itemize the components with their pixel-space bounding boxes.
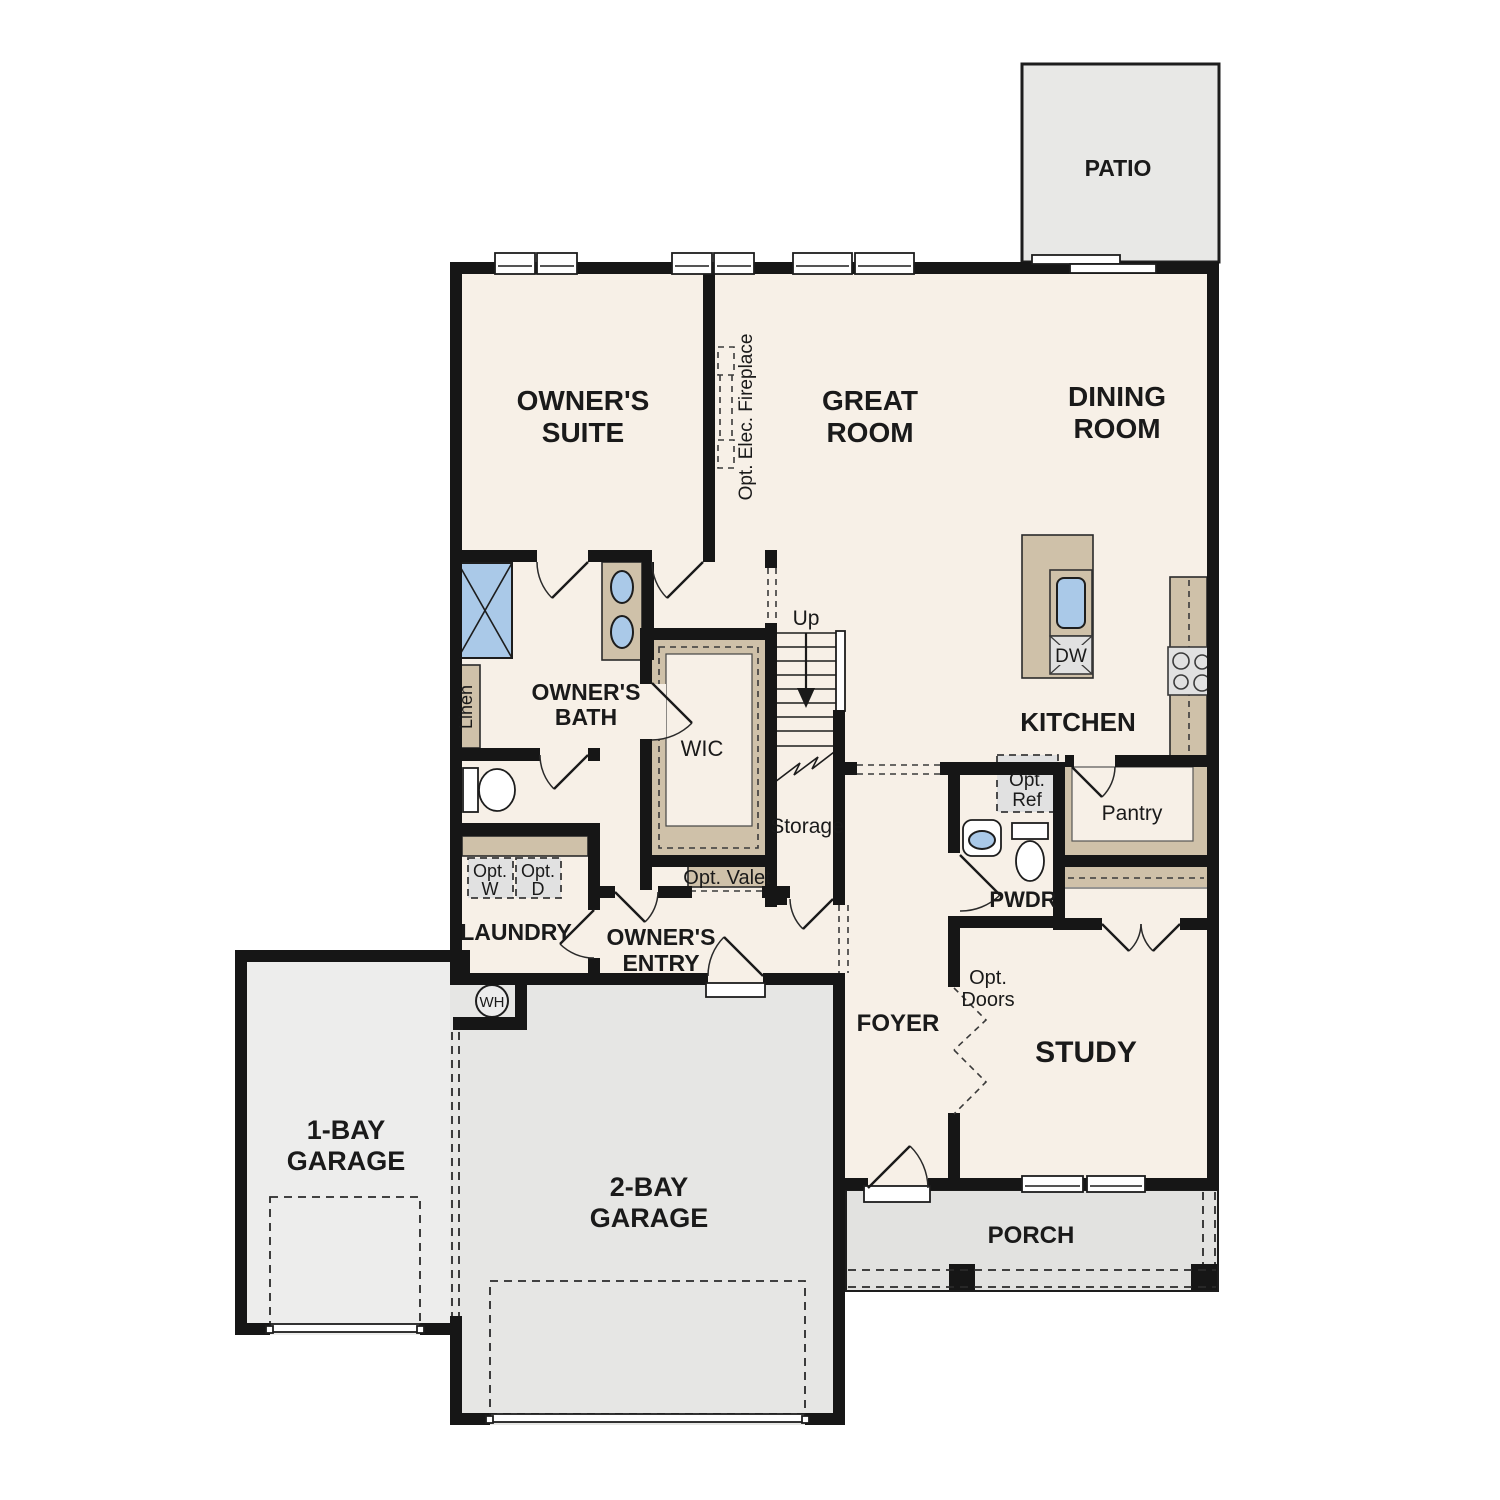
floorplan-page: PATIO OWNER'S SUITE GREAT ROOM DINING RO… [0, 0, 1500, 1500]
range-cooktop [1168, 647, 1213, 695]
label-opt-w-2: W [482, 879, 499, 899]
label-dw: DW [1055, 646, 1087, 667]
label-garage-2bay-1: 2-BAY [610, 1172, 689, 1202]
label-owners-entry-2: ENTRY [622, 950, 699, 976]
label-dining-room-1: DINING [1068, 381, 1166, 412]
label-storage: Storage [770, 815, 844, 838]
label-owners-bath-2: BATH [555, 704, 617, 730]
laundry-counter [462, 836, 588, 856]
label-owners-suite-1: OWNER'S [517, 385, 650, 416]
window [1087, 1176, 1145, 1192]
label-opt-doors-1: Opt. [969, 967, 1007, 989]
label-fireplace: Opt. Elec. Fireplace [736, 334, 757, 501]
label-patio: PATIO [1085, 155, 1152, 181]
window [537, 253, 577, 274]
owners-toilet [463, 768, 515, 812]
window [855, 253, 914, 274]
label-study: STUDY [1035, 1036, 1137, 1069]
label-wic: WIC [681, 736, 724, 761]
island-sink [1057, 578, 1085, 628]
label-opt-valet: Opt. Valet [683, 867, 771, 889]
label-garage-1bay-1: 1-BAY [307, 1115, 386, 1145]
label-opt-ref-2: Ref [1012, 790, 1042, 811]
label-garage-1bay-2: GARAGE [287, 1146, 406, 1176]
label-opt-w-1: Opt. [473, 861, 507, 881]
window [495, 253, 535, 274]
label-opt-d-2: D [532, 879, 545, 899]
vanity-sink-1 [611, 571, 633, 603]
vanity-sink-2 [611, 616, 633, 648]
label-wh: WH [480, 994, 505, 1011]
label-opt-doors-2: Doors [961, 989, 1014, 1011]
label-pantry: Pantry [1102, 802, 1163, 825]
label-great-room-2: ROOM [826, 417, 913, 448]
label-linen: Linen [456, 685, 476, 729]
label-owners-bath-1: OWNER'S [532, 679, 641, 705]
label-laundry: LAUNDRY [460, 919, 572, 945]
garage-door-threshold [706, 983, 765, 997]
window [1022, 1176, 1083, 1192]
front-door-threshold [864, 1186, 930, 1202]
label-kitchen: KITCHEN [1020, 707, 1136, 737]
label-opt-ref-1: Opt. [1009, 770, 1045, 791]
label-foyer: FOYER [857, 1010, 940, 1037]
label-pwdr: PWDR [989, 887, 1056, 912]
label-garage-2bay-2: GARAGE [590, 1203, 709, 1233]
wic-door-gap [650, 684, 666, 739]
powder-sink [963, 820, 1001, 856]
garage-door-2bay [486, 1414, 809, 1423]
stair-rail [836, 631, 845, 711]
label-owners-suite-2: SUITE [542, 417, 624, 448]
label-porch: PORCH [988, 1222, 1075, 1249]
shower [458, 563, 512, 658]
garage-door-1bay [266, 1324, 424, 1333]
window [793, 253, 852, 274]
floorplan-drawing: PATIO OWNER'S SUITE GREAT ROOM DINING RO… [0, 0, 1500, 1500]
window [672, 253, 712, 274]
study-closet-shelf [1065, 867, 1207, 887]
label-owners-entry-1: OWNER'S [607, 924, 716, 950]
label-dining-room-2: ROOM [1073, 413, 1160, 444]
window [714, 253, 754, 274]
label-up: Up [793, 607, 820, 630]
label-opt-d-1: Opt. [521, 861, 555, 881]
label-great-room-1: GREAT [822, 385, 918, 416]
